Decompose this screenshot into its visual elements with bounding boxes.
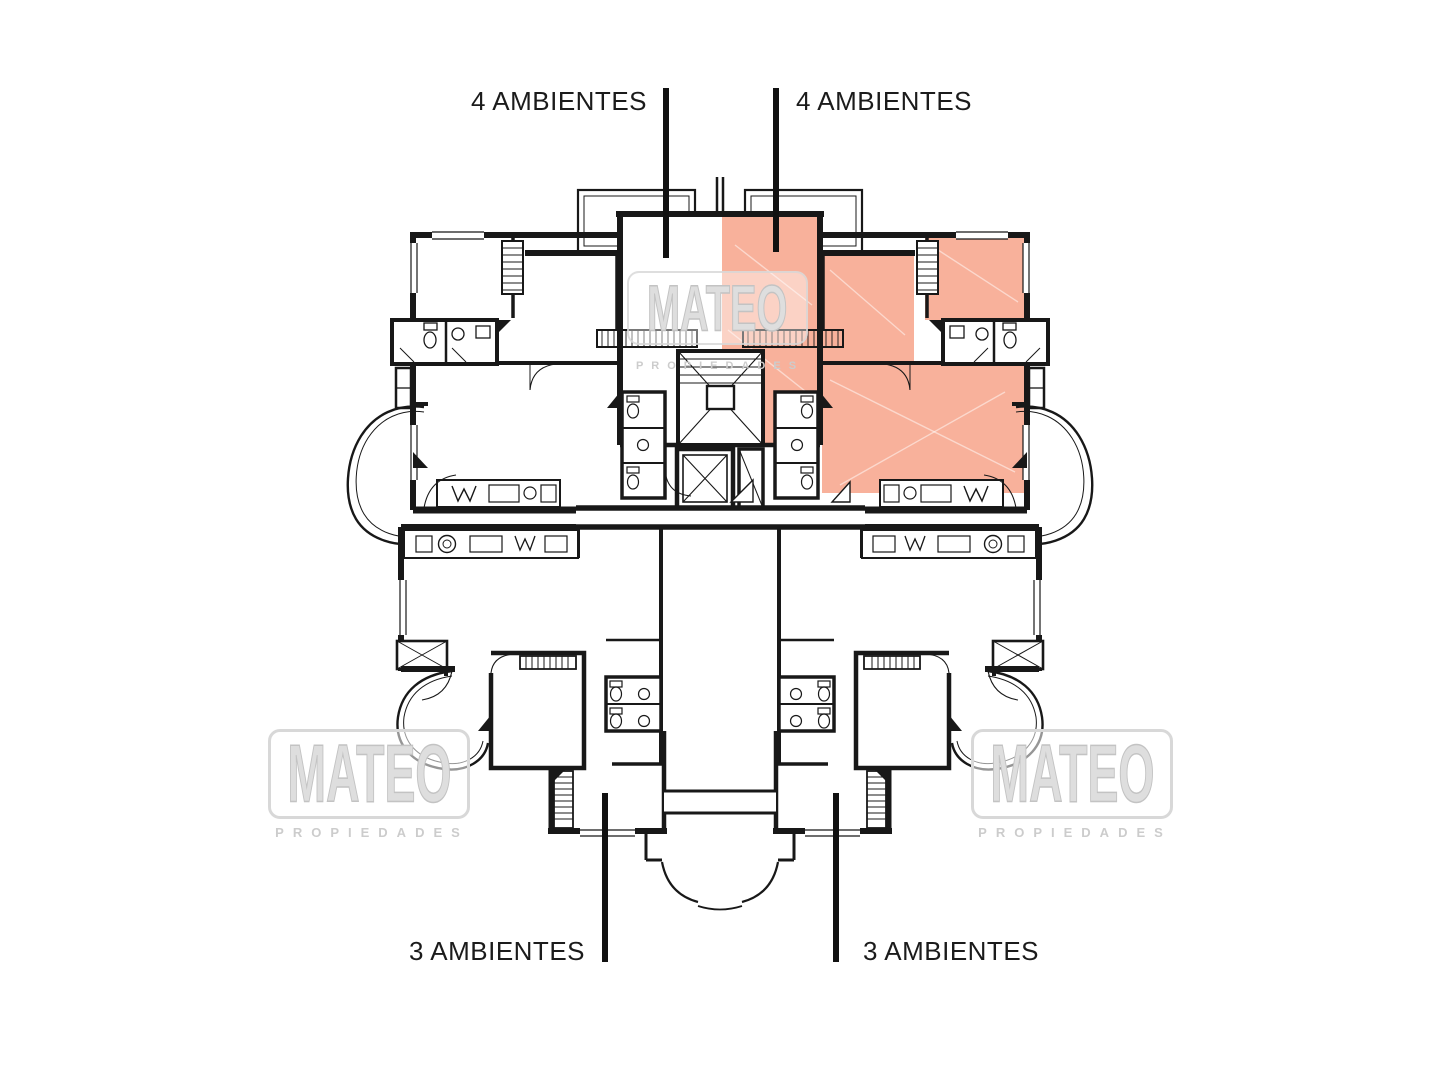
watermark-bottom-left: MATEO PROPIEDADES xyxy=(268,729,470,839)
label-3-ambientes-bottom-right: 3 AMBIENTES xyxy=(863,938,1039,964)
label-3-ambientes-bottom-left: 3 AMBIENTES xyxy=(409,938,585,964)
watermark-center: MATEO PROPIEDADES xyxy=(627,271,808,372)
watermark-frame: MATEO xyxy=(971,729,1173,819)
label-4-ambientes-top-right: 4 AMBIENTES xyxy=(796,88,972,114)
watermark-subtitle: PROPIEDADES xyxy=(977,826,1173,839)
watermark-frame: MATEO xyxy=(627,271,808,345)
watermark-logo-text: MATEO xyxy=(287,733,451,815)
watermark-logo-text: MATEO xyxy=(647,275,787,340)
label-4-ambientes-top-left: 4 AMBIENTES xyxy=(471,88,647,114)
watermark-bottom-right: MATEO PROPIEDADES xyxy=(971,729,1173,839)
watermark-subtitle: PROPIEDADES xyxy=(274,826,470,839)
floor-plan-drawing xyxy=(0,0,1440,1080)
watermark-frame: MATEO xyxy=(268,729,470,819)
watermark-subtitle: PROPIEDADES xyxy=(632,361,808,372)
floor-plan-page: 4 AMBIENTES 4 AMBIENTES 3 AMBIENTES 3 AM… xyxy=(0,0,1440,1080)
watermark-logo-text: MATEO xyxy=(990,733,1154,815)
